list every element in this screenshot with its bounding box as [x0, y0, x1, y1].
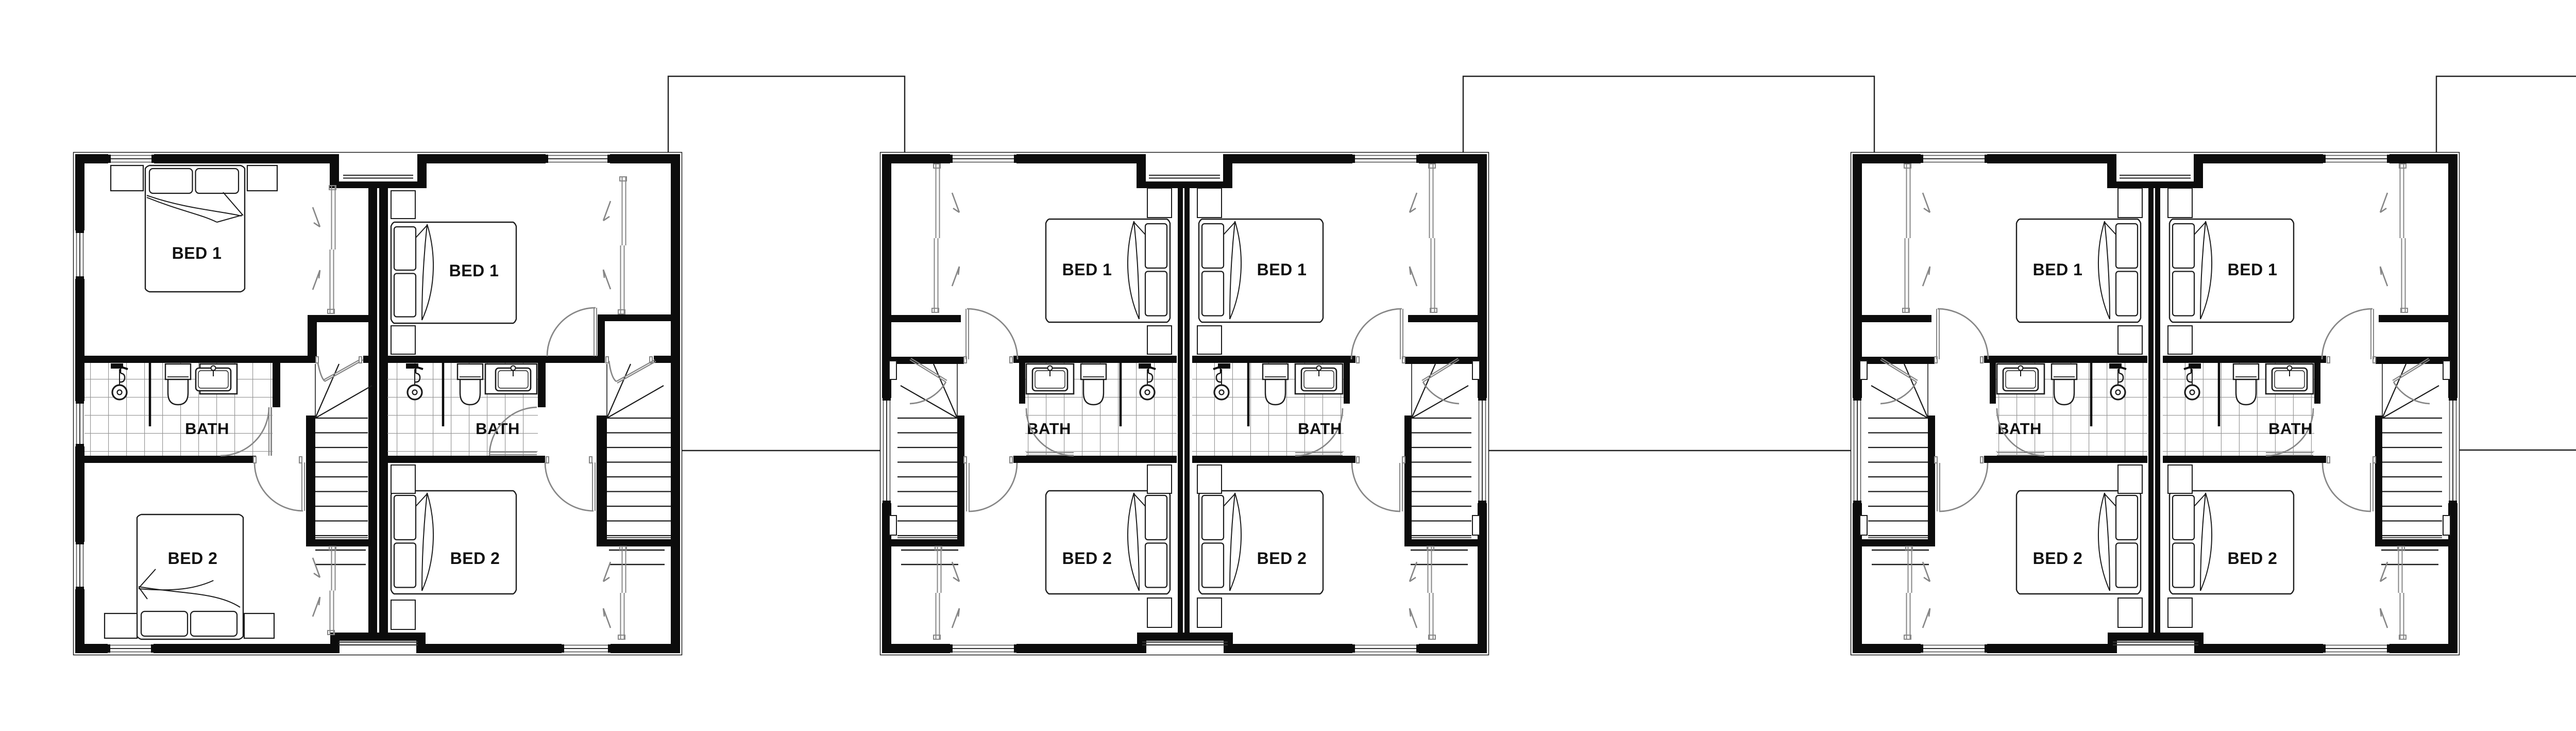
svg-text:BED 1: BED 1 — [2228, 260, 2278, 279]
svg-text:BED 2: BED 2 — [2033, 549, 2083, 568]
svg-text:BATH: BATH — [1027, 420, 1071, 438]
svg-text:BED 2: BED 2 — [2228, 549, 2278, 568]
svg-text:BED 1: BED 1 — [1257, 260, 1307, 279]
svg-text:BATH: BATH — [1298, 420, 1342, 438]
svg-text:BED 1: BED 1 — [449, 261, 499, 280]
svg-text:BED 2: BED 2 — [168, 549, 218, 568]
svg-text:BATH: BATH — [1997, 420, 2042, 438]
svg-text:BATH: BATH — [185, 420, 229, 438]
svg-text:BATH: BATH — [2268, 420, 2313, 438]
svg-text:BED 1: BED 1 — [2033, 260, 2083, 279]
svg-text:BED 1: BED 1 — [1062, 260, 1112, 279]
svg-text:BED 2: BED 2 — [1257, 549, 1307, 568]
svg-text:BED 2: BED 2 — [1062, 549, 1112, 568]
svg-text:BED 1: BED 1 — [172, 244, 222, 262]
svg-text:BED 2: BED 2 — [450, 549, 500, 568]
